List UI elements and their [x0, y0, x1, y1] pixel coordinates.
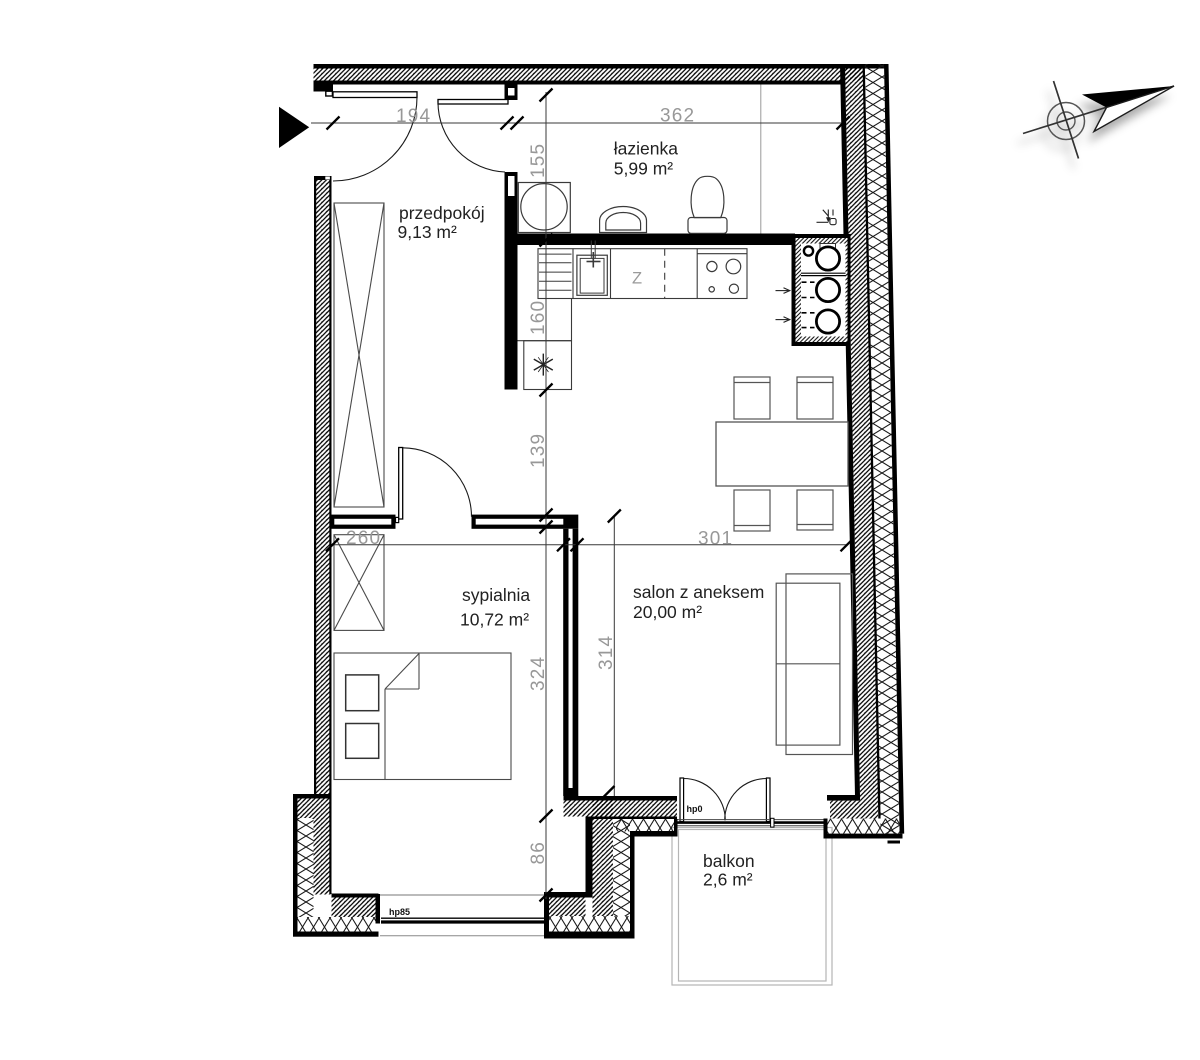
svg-text:sypialnia: sypialnia — [462, 585, 530, 605]
svg-text:324: 324 — [528, 656, 549, 691]
svg-text:139: 139 — [528, 433, 549, 468]
svg-text:9,13 m²: 9,13 m² — [398, 222, 457, 242]
svg-text:160: 160 — [528, 300, 549, 335]
svg-text:5,99 m²: 5,99 m² — [614, 159, 673, 179]
svg-text:hp0: hp0 — [687, 804, 703, 814]
svg-text:balkon: balkon — [703, 851, 755, 871]
svg-text:314: 314 — [596, 635, 617, 670]
svg-text:194: 194 — [396, 106, 431, 127]
svg-text:260: 260 — [346, 528, 381, 549]
svg-text:362: 362 — [660, 106, 695, 127]
svg-text:86: 86 — [528, 841, 549, 865]
svg-text:2,6 m²: 2,6 m² — [703, 870, 753, 890]
svg-text:155: 155 — [528, 143, 549, 178]
svg-text:10,72 m²: 10,72 m² — [460, 610, 529, 630]
svg-text:salon z aneksem: salon z aneksem — [633, 582, 764, 602]
svg-text:hp85: hp85 — [389, 907, 410, 917]
svg-text:Z: Z — [632, 270, 642, 288]
svg-text:20,00 m²: 20,00 m² — [633, 602, 702, 622]
svg-text:łazienka: łazienka — [614, 139, 678, 159]
svg-text:301: 301 — [698, 529, 733, 550]
svg-text:przedpokój: przedpokój — [399, 203, 485, 223]
